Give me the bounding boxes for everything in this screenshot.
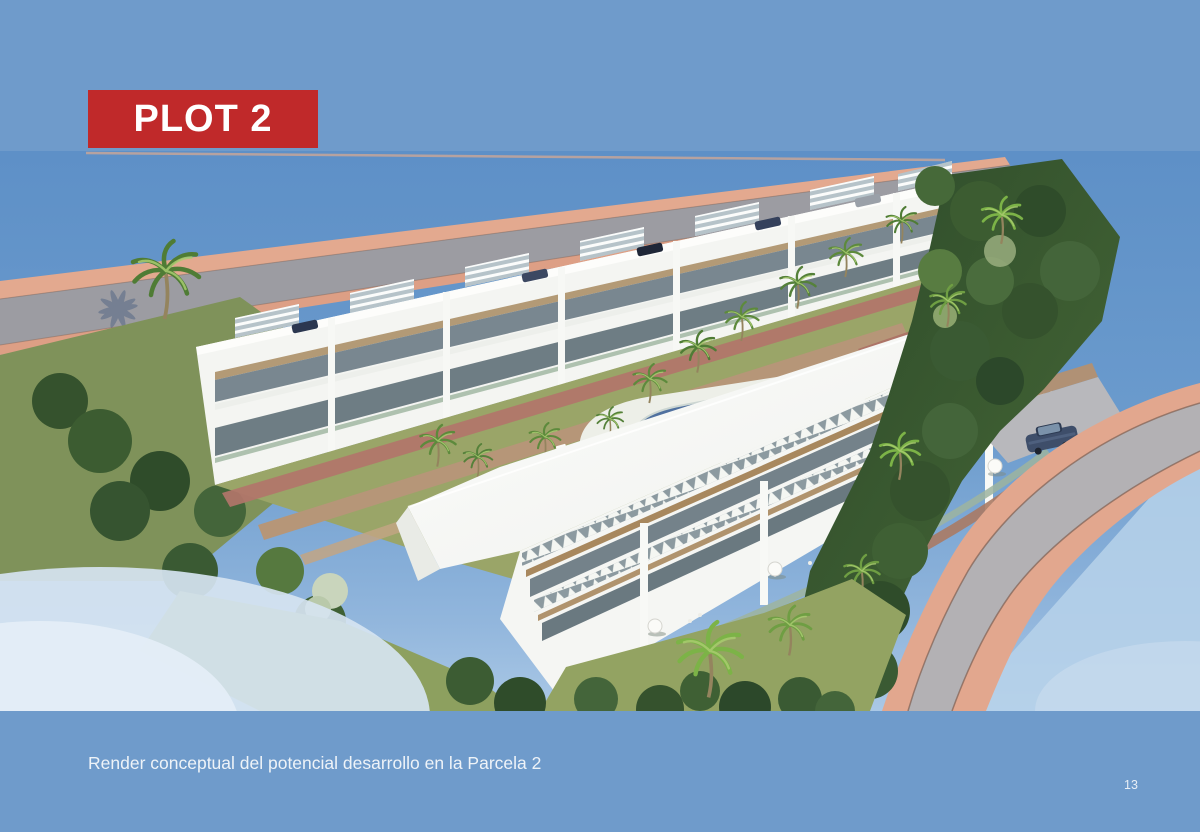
render-caption: Render conceptual del potencial desarrol…	[88, 753, 541, 774]
plot-banner: PLOT 2	[88, 90, 318, 148]
slide: PLOT 2	[0, 0, 1200, 832]
plot-banner-label: PLOT 2	[133, 98, 272, 141]
development-render	[0, 151, 1200, 711]
page-number: 13	[1124, 778, 1138, 792]
